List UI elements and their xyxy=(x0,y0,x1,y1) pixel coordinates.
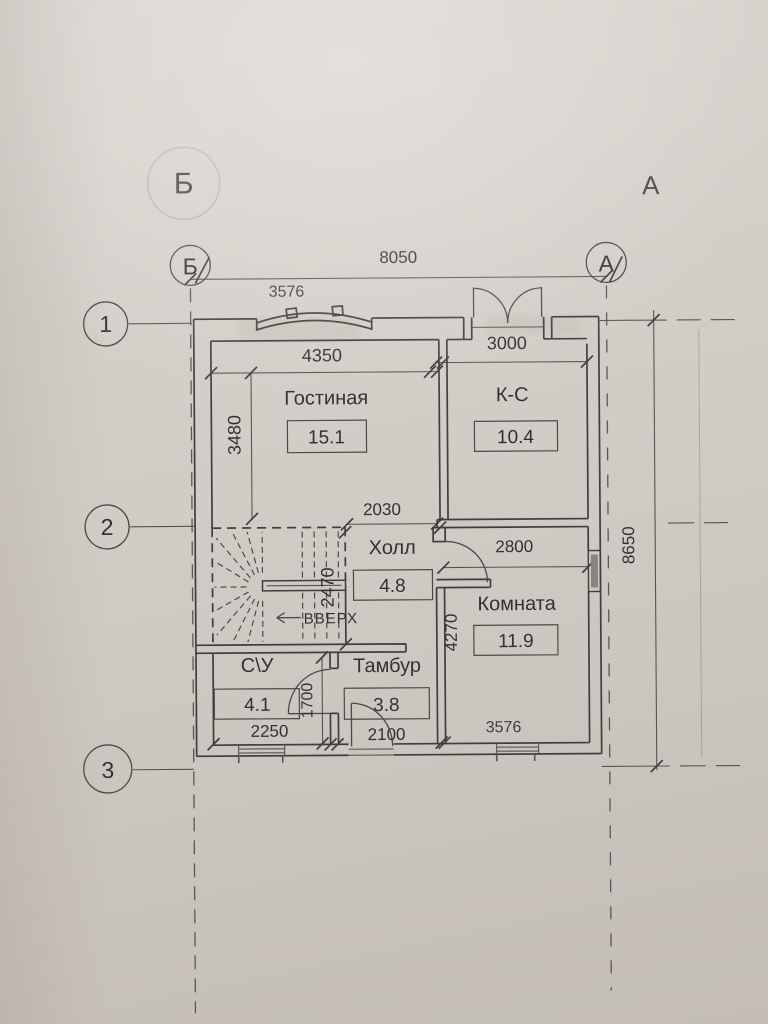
room-tambur-label: Тамбур xyxy=(353,655,421,677)
room-kitchen-area: 10.4 xyxy=(497,427,535,448)
dim-overall-width: 8050 xyxy=(379,248,417,267)
grid-marker-1: 1 xyxy=(99,311,112,337)
dim-su-depth: 1700 xyxy=(299,683,316,719)
grid-marker-3: 3 xyxy=(101,757,114,783)
floor-plan-drawing: Б А 3576 3576 xyxy=(0,0,768,1024)
bleed-smudge xyxy=(487,315,579,336)
room-su-area: 4.1 xyxy=(244,695,271,716)
room-hall-area: 4.8 xyxy=(379,576,406,597)
bleed-number-bottom: 3576 xyxy=(486,719,522,736)
dim-room-width: 2800 xyxy=(495,537,533,556)
room-living-area: 15.1 xyxy=(308,427,345,448)
room-room-area: 11.9 xyxy=(498,631,534,652)
dim-tambur-width: 2100 xyxy=(368,725,406,744)
bleed-axis-a: А xyxy=(642,170,660,200)
dim-su-width: 2250 xyxy=(251,722,289,741)
dim-living-width: 4350 xyxy=(302,345,342,365)
room-hall-label: Холл xyxy=(369,537,416,559)
dim-stairs-depth: 2470 xyxy=(317,567,337,607)
floor-plan-photo: Б А 3576 3576 xyxy=(0,0,768,1024)
grid-marker-a: А xyxy=(599,250,615,276)
dim-overall-height: 8650 xyxy=(619,526,638,564)
bleed-number-top: 3576 xyxy=(269,284,305,301)
dim-kitchen-width: 3000 xyxy=(487,333,527,353)
grid-marker-2: 2 xyxy=(101,514,114,540)
room-living-label: Гостиная xyxy=(284,387,368,410)
room-su-label: С\У xyxy=(241,655,274,677)
stairs-up-label: ВВЕРХ xyxy=(304,610,358,627)
dim-living-depth: 3480 xyxy=(224,415,244,455)
room-room-label: Комната xyxy=(477,593,556,616)
room-tambur-area: 3.8 xyxy=(373,695,400,716)
dim-opening-width: 2030 xyxy=(363,500,401,519)
bleed-axis-b: Б xyxy=(174,167,194,200)
dim-room-depth: 4270 xyxy=(442,614,461,652)
grid-marker-b: Б xyxy=(183,253,198,279)
room-kitchen-label: К-С xyxy=(496,384,529,406)
